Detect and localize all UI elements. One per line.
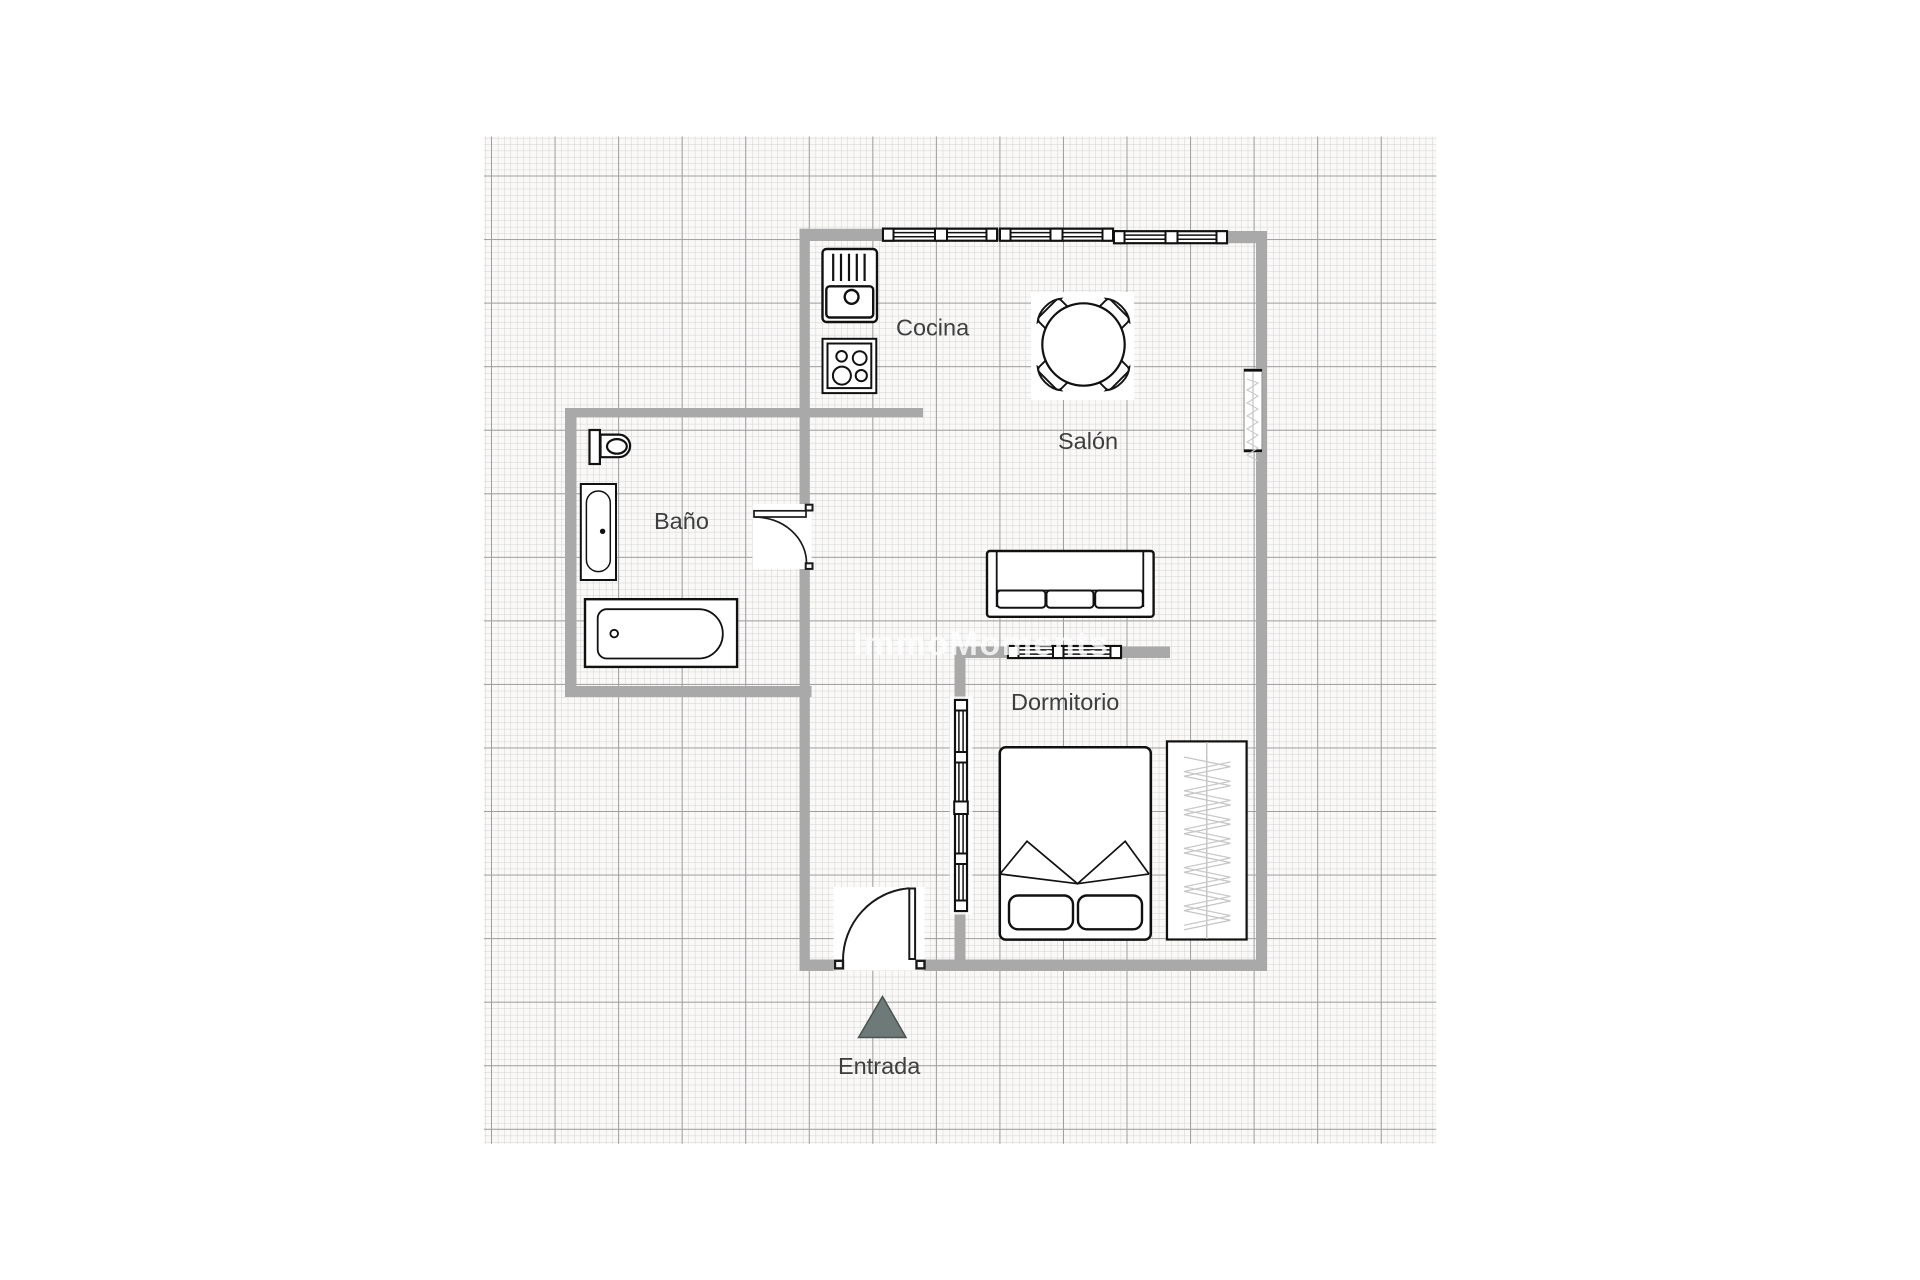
svg-text:Salón: Salón: [1058, 428, 1118, 454]
svg-text:ImmoMoments: ImmoMoments: [853, 625, 1109, 663]
svg-text:Entrada: Entrada: [838, 1053, 921, 1079]
svg-text:Baño: Baño: [654, 508, 709, 534]
svg-text:Dormitorio: Dormitorio: [1011, 689, 1119, 715]
svg-text:Cocina: Cocina: [896, 315, 970, 341]
